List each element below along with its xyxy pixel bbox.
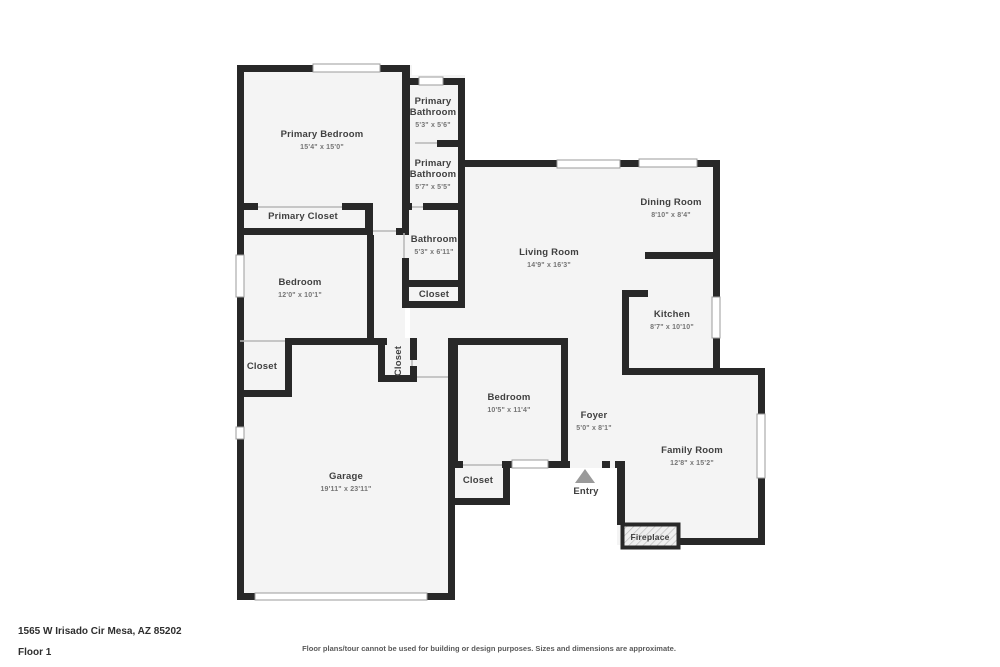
wall-segment [367, 235, 374, 342]
room-dims: 12'0" x 10'1" [278, 292, 322, 299]
room-name: Bedroom [487, 392, 530, 403]
wall-segment [451, 338, 568, 345]
floor-plan-page: Primary Bedroom15'4" x 15'0"PrimaryBathr… [0, 0, 1000, 667]
room-label-entry: Entry [573, 486, 599, 497]
window [557, 160, 620, 168]
room-name: Bathroom [410, 169, 456, 180]
room-name: Dining Room [640, 197, 701, 208]
room-label-closet-vertical: Closet [393, 345, 404, 376]
window [419, 77, 443, 85]
room-label-bedroom-closet: Closet [247, 361, 278, 372]
room-name: Living Room [519, 247, 579, 258]
wall-segment [758, 478, 765, 545]
wall-segment [410, 338, 417, 360]
wall-segment [237, 228, 373, 235]
wall-segment [503, 461, 510, 505]
entry-arrow-icon [575, 469, 595, 483]
wall-segment [617, 461, 625, 525]
wall-segment [237, 390, 292, 397]
room-label-entry-closet: Closet [463, 475, 494, 486]
room-name: Primary [415, 96, 452, 107]
room-name: Bathroom [410, 107, 456, 118]
room-name: Bathroom [411, 234, 457, 245]
wall-segment [758, 368, 765, 415]
room-dims: 8'10" x 8'4" [651, 212, 691, 219]
room-fill [617, 368, 765, 545]
room-label-primary-bathroom-2: PrimaryBathroom5'7" x 5'5" [410, 158, 456, 191]
room-name: Closet [247, 361, 278, 372]
window [236, 255, 244, 297]
room-name: Closet [463, 475, 494, 486]
window [712, 297, 720, 338]
room-dims: 5'7" x 5'5" [415, 184, 451, 191]
room-label-fireplace: Fireplace [630, 532, 669, 542]
room-name: Primary Closet [268, 211, 338, 222]
wall-segment [622, 290, 629, 375]
room-name: Garage [329, 471, 363, 482]
room-dims: 5'3" x 6'11" [414, 249, 453, 256]
wall-segment [462, 160, 557, 167]
wall-segment [402, 203, 409, 233]
room-name: Foyer [581, 410, 608, 421]
room-name: Primary Bedroom [281, 129, 364, 140]
wall-segment [713, 160, 720, 375]
room-dims: 19'11" x 23'11" [320, 486, 371, 493]
room-fill [373, 205, 405, 339]
room-label-primary-closet: Primary Closet [268, 211, 338, 222]
room-dims: 8'7" x 10'10" [650, 324, 694, 331]
room-dims: 5'0" x 8'1" [576, 425, 612, 432]
address-text: 1565 W Irisado Cir Mesa, AZ 85202 [18, 626, 182, 637]
room-fill [237, 340, 455, 600]
wall-segment [561, 338, 568, 468]
window [313, 64, 380, 72]
room-name: Closet [419, 289, 450, 300]
floor-label: Floor 1 [18, 647, 51, 658]
window [512, 460, 548, 468]
wall-segment [448, 338, 455, 600]
wall-segment [237, 65, 244, 600]
room-dims: 5'3" x 5'6" [415, 122, 451, 129]
wall-segment [602, 461, 610, 468]
wall-segment [622, 368, 765, 375]
wall-segment [402, 301, 465, 308]
room-name: Bedroom [278, 277, 321, 288]
wall-segment [378, 338, 385, 382]
window [639, 159, 697, 167]
wall-segment [448, 498, 510, 505]
room-name: Family Room [661, 445, 723, 456]
wall-segment [645, 252, 720, 259]
room-dims: 12'8" x 15'2" [670, 460, 714, 467]
room-name: Primary [415, 158, 452, 169]
room-dims: 14'9" x 16'3" [527, 262, 571, 269]
wall-segment [402, 258, 409, 308]
room-name: Kitchen [654, 309, 690, 320]
wall-segment [365, 203, 373, 235]
wall-segment [410, 366, 417, 382]
wall-segment [458, 78, 465, 308]
wall-segment [402, 65, 410, 210]
wall-segment [285, 338, 292, 397]
window [757, 414, 765, 478]
window [255, 593, 427, 600]
floor-plan: Primary Bedroom15'4" x 15'0"PrimaryBathr… [0, 0, 1000, 667]
room-label-primary-bathroom-1: PrimaryBathroom5'3" x 5'6" [410, 96, 456, 129]
room-label-hall-closet: Closet [419, 289, 450, 300]
room-name: Entry [573, 486, 599, 497]
room-name: Closet [393, 345, 404, 376]
room-name: Fireplace [630, 532, 669, 542]
window [236, 427, 244, 439]
room-dims: 15'4" x 15'0" [300, 144, 344, 151]
room-fill [451, 338, 568, 468]
wall-segment [402, 280, 465, 287]
room-dims: 10'5" x 11'4" [487, 407, 530, 414]
wall-segment [620, 160, 639, 167]
disclaimer-text: Floor plans/tour cannot be used for buil… [302, 644, 676, 653]
